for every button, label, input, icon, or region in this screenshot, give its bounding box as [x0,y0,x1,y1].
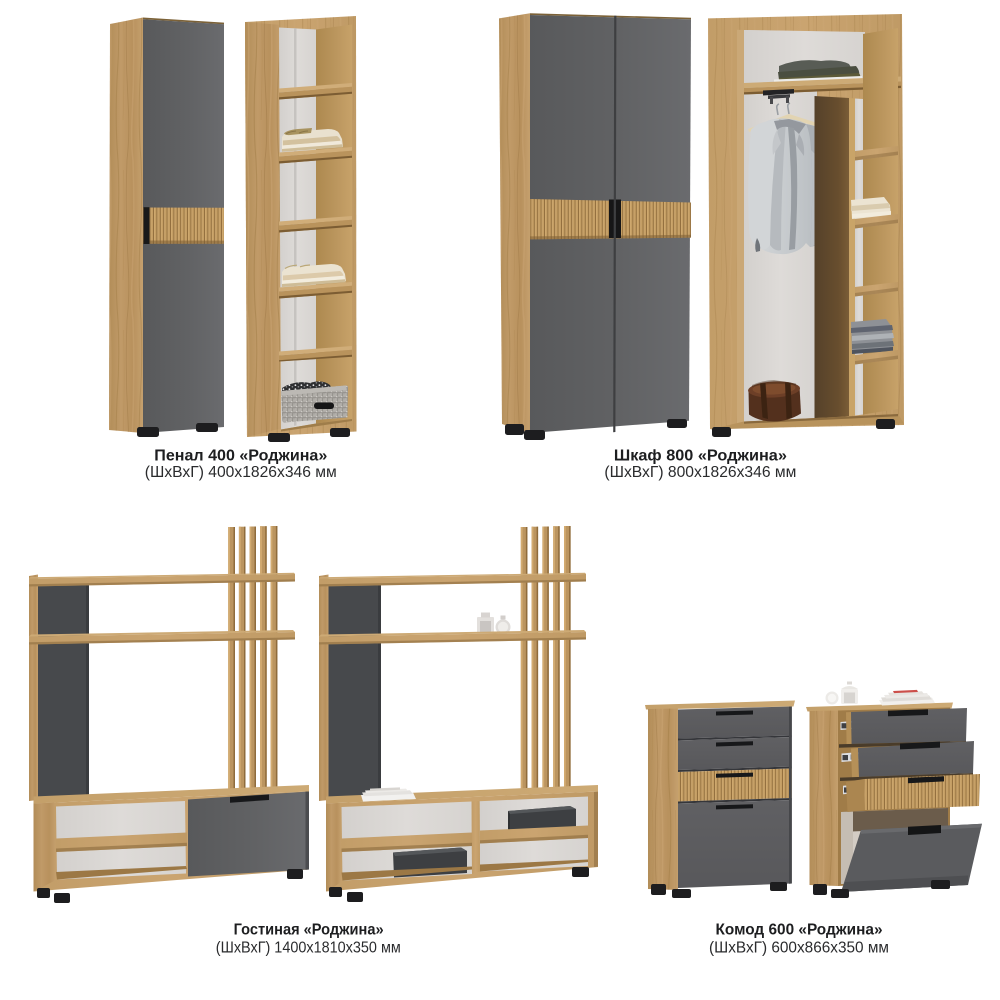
svg-text:Шкаф 800 «Роджина»: Шкаф 800 «Роджина» [614,448,787,465]
svg-text:Пенал 400 «Роджина»: Пенал 400 «Роджина» [154,448,327,465]
svg-text:(ШхВхГ) 400х1826х346 мм: (ШхВхГ) 400х1826х346 мм [145,464,337,481]
svg-text:(ШхВхГ) 1400х1810х350 мм: (ШхВхГ) 1400х1810х350 мм [216,939,401,956]
svg-text:(ШхВхГ) 600х866х350 мм: (ШхВхГ) 600х866х350 мм [709,939,889,956]
svg-text:Гостиная «Роджина»: Гостиная «Роджина» [234,922,384,939]
svg-text:Комод 600 «Роджина»: Комод 600 «Роджина» [716,922,883,939]
svg-text:(ШхВхГ) 800х1826х346 мм: (ШхВхГ) 800х1826х346 мм [604,464,796,481]
